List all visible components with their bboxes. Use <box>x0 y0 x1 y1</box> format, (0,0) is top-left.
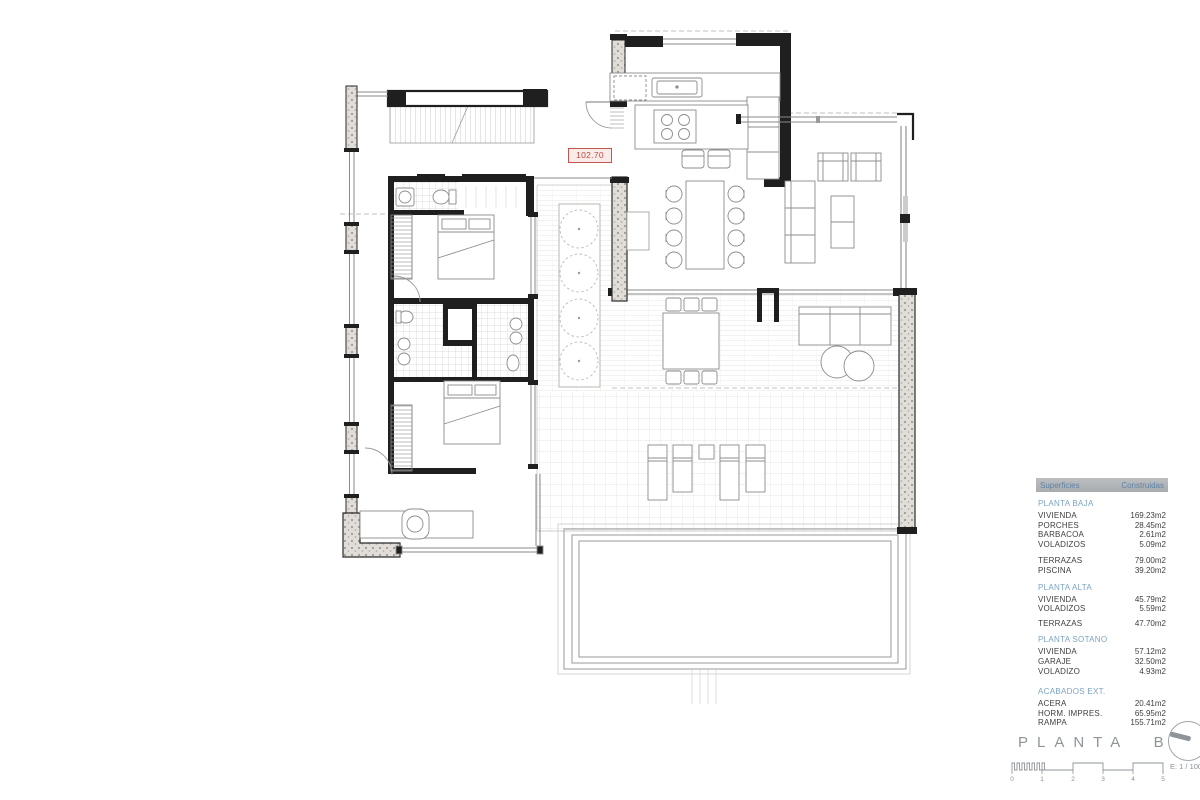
floor-plan-drawing: 0 1 2 3 4 5 <box>0 0 1200 800</box>
dining-table <box>666 181 744 269</box>
section-planta-alta: PLANTA ALTA VIVIENDA45.79m2 VOLADIZOS5.5… <box>1036 583 1168 614</box>
kitchen-stool <box>682 150 704 168</box>
bed <box>444 381 500 444</box>
sink <box>510 318 522 330</box>
table-row: ACERA20.41m2 <box>1038 699 1166 709</box>
fireplace <box>900 214 910 223</box>
desk-chair <box>402 509 429 539</box>
table-row: VOLADIZOS5.59m2 <box>1038 604 1166 614</box>
bedroom-2 <box>391 381 500 471</box>
table-row: TERRAZAS47.70m2 <box>1038 619 1166 629</box>
bedroom-1 <box>391 215 494 302</box>
scale-tick: 2 <box>1071 776 1075 783</box>
kitchen-island <box>635 105 748 149</box>
table-row: VIVIENDA57.12m2 <box>1038 647 1166 657</box>
section-title: PLANTA ALTA <box>1038 583 1166 593</box>
door-arc <box>365 448 392 475</box>
living-furniture <box>785 153 881 263</box>
scale-tick: 3 <box>1101 776 1105 783</box>
outdoor-dining <box>663 298 719 384</box>
section-planta-baja: PLANTA BAJA VIVIENDA169.23m2 PORCHES28.4… <box>1036 499 1168 549</box>
section-acabados-ext: ACABADOS EXT. ACERA20.41m2 HORM. IMPRES.… <box>1036 687 1168 728</box>
section-title: PLANTA BAJA <box>1038 499 1166 509</box>
side-table <box>699 445 714 459</box>
armchair <box>818 153 848 181</box>
table-row: BARBACOA2.61m2 <box>1038 530 1166 540</box>
planter-trees <box>559 204 600 387</box>
shower <box>448 309 472 341</box>
sofa <box>785 181 815 263</box>
sink <box>398 353 410 365</box>
bathroom-2 <box>394 304 528 382</box>
wardrobe <box>391 405 412 471</box>
section-title: PLANTA SOTANO <box>1038 635 1166 645</box>
areas-table-header: Superficies Construidas <box>1036 478 1168 492</box>
kitchen-stool <box>708 150 730 168</box>
outdoor-sofa <box>799 307 891 345</box>
table-row: PORCHES28.45m2 <box>1038 521 1166 531</box>
kitchen-window-top <box>663 39 736 44</box>
table-row: VIVIENDA45.79m2 <box>1038 595 1166 605</box>
bathroom-1 <box>394 182 516 210</box>
scale-tick: 1 <box>1040 776 1044 783</box>
table-row: VOLADIZOS5.09m2 <box>1038 540 1166 550</box>
table-row: PISCINA39.20m2 <box>1038 566 1166 576</box>
toilet <box>433 190 449 204</box>
pouf <box>844 351 874 381</box>
table-row: HORM. IMPRES.65.95m2 <box>1038 709 1166 719</box>
section-terrazas-alta: TERRAZAS47.70m2 <box>1036 619 1168 629</box>
section-planta-sotano: PLANTA SOTANO VIVIENDA57.12m2 GARAJE32.5… <box>1036 635 1168 676</box>
table-row: RAMPA155.71m2 <box>1038 718 1166 728</box>
armchair <box>851 153 881 181</box>
table-row: VOLADIZO4.93m2 <box>1038 667 1166 677</box>
section-title: ACABADOS EXT. <box>1038 687 1166 697</box>
scale-tick: 0 <box>1010 776 1014 783</box>
bed <box>438 215 494 279</box>
wardrobe <box>391 215 412 279</box>
table-row: TERRAZAS79.00m2 <box>1038 556 1166 566</box>
drawing-sheet: 0 1 2 3 4 5 102.70 Superficies Construid… <box>0 0 1200 800</box>
north-compass-icon <box>1168 721 1200 761</box>
header-col-construidas: Construidas <box>1121 481 1164 490</box>
sink <box>398 338 410 350</box>
level-label: 102.70 <box>568 148 612 163</box>
scale-tick: 4 <box>1131 776 1135 783</box>
section-terrazas-piscina: TERRAZAS79.00m2 PISCINA39.20m2 <box>1036 556 1168 575</box>
kitchen <box>610 73 780 179</box>
terrace-stone-wall <box>897 288 917 534</box>
table-row: VIVIENDA169.23m2 <box>1038 511 1166 521</box>
scale-label: E: 1 / 100 <box>1170 762 1200 771</box>
scale-tick: 5 <box>1161 776 1165 783</box>
bench <box>627 212 649 250</box>
outdoor-table <box>663 313 719 369</box>
areas-table: Superficies Construidas PLANTA BAJA VIVI… <box>1036 478 1168 728</box>
compass-needle-icon <box>1170 732 1191 741</box>
header-col-superficies: Superficies <box>1040 481 1080 490</box>
canopy <box>357 89 547 143</box>
study <box>360 448 543 554</box>
table-row: GARAJE32.50m2 <box>1038 657 1166 667</box>
scale-bar[interactable]: 0 1 2 3 4 5 <box>1010 763 1165 783</box>
pool <box>558 524 910 704</box>
toilet <box>507 355 519 371</box>
sink <box>510 332 522 344</box>
